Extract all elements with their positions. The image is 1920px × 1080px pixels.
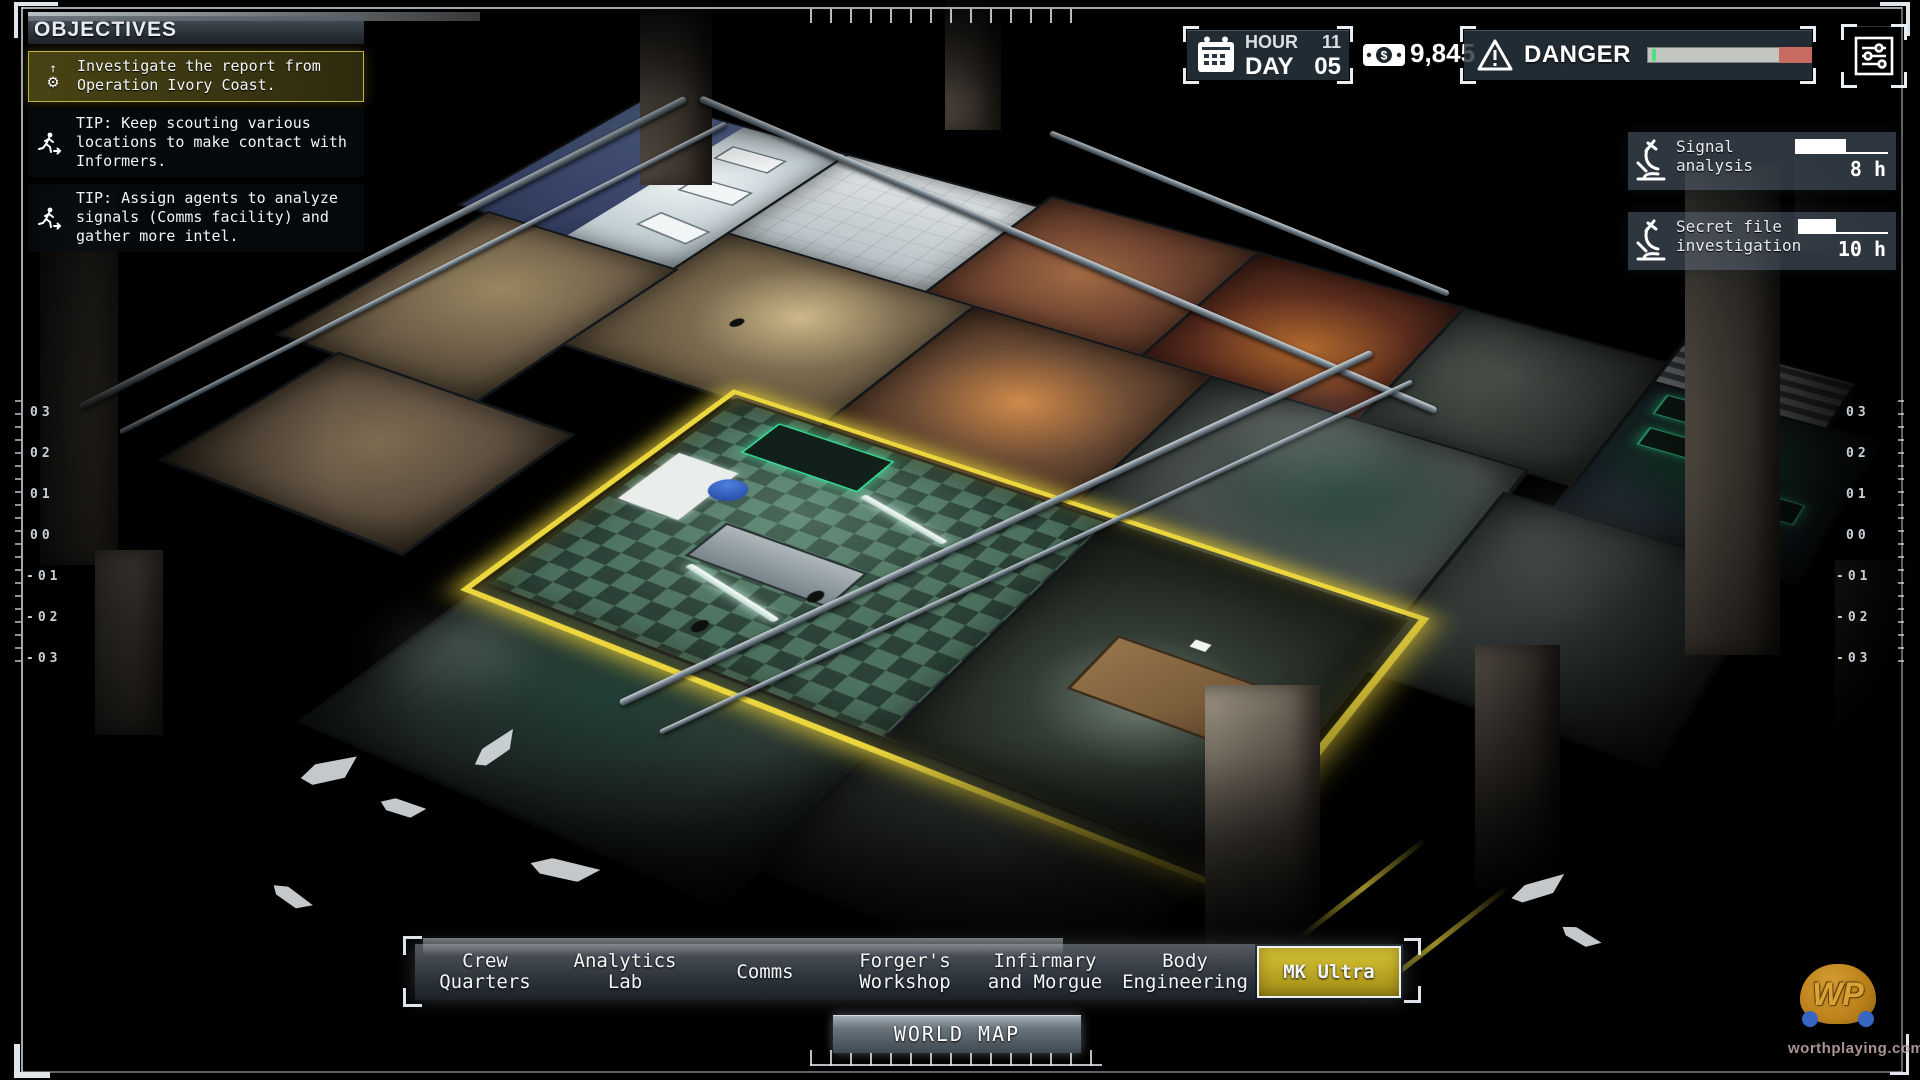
runner-icon — [36, 206, 68, 230]
hour-value: 11 — [1322, 32, 1341, 53]
tabbar-bracket-top-right — [1404, 938, 1421, 955]
danger-bar — [1647, 47, 1812, 63]
objective-text: Investigate the report from Operation Iv… — [77, 57, 321, 94]
ruler-label: 02 — [30, 446, 54, 461]
objective-item[interactable]: TIP: Keep scouting various locations to … — [28, 109, 364, 177]
objectives-panel: OBJECTIVES ↑⚙ Investigate the report fro… — [28, 16, 364, 252]
danger-level-marker — [1652, 49, 1656, 61]
ruler-label: 03 — [1846, 405, 1870, 420]
logo-dot — [1802, 1011, 1818, 1027]
facility-tab-bar: Crew Quarters Analytics Lab Comms Forger… — [415, 944, 1403, 1000]
objectives-title: OBJECTIVES — [34, 18, 177, 42]
task-signal-analysis[interactable]: Signal analysis 8 h — [1628, 132, 1896, 190]
objective-gear-icon: ↑⚙ — [37, 63, 69, 90]
ruler-label: -01 — [1836, 569, 1871, 584]
worthplaying-logo: WP — [1800, 964, 1876, 1024]
game-screen: { "objectives": { "title": "OBJECTIVES",… — [0, 0, 1920, 1080]
smoke — [1240, 400, 1390, 480]
objective-item[interactable]: ↑⚙ Investigate the report from Operation… — [28, 51, 364, 102]
danger-red-zone — [1779, 47, 1812, 63]
hour-label: HOUR — [1245, 32, 1298, 53]
svg-text:$: $ — [1381, 49, 1388, 63]
ruler-label: -03 — [1836, 651, 1871, 666]
smoke — [380, 620, 520, 690]
task-secret-file[interactable]: Secret file investigation 10 h — [1628, 212, 1896, 270]
tabbar-bracket-bottom-right — [1404, 986, 1421, 1003]
danger-label: DANGER — [1524, 41, 1631, 69]
task-progress-track — [1795, 152, 1888, 154]
day-value: 05 — [1314, 53, 1341, 81]
left-ruler-ticks — [15, 400, 21, 664]
bed — [636, 212, 711, 245]
smoke — [1500, 500, 1670, 590]
objective-text: TIP: Assign agents to analyze signals (C… — [76, 189, 338, 245]
microscope-icon — [1634, 137, 1668, 183]
ruler-label: -03 — [26, 651, 61, 666]
day-label: DAY — [1245, 53, 1293, 81]
objective-item[interactable]: TIP: Assign agents to analyze signals (C… — [28, 184, 364, 252]
right-ruler-ticks — [1898, 400, 1904, 664]
sliders-icon — [1852, 34, 1896, 78]
paint-shard — [269, 880, 315, 915]
task-time-left: 10 h — [1838, 237, 1886, 261]
ruler-label: -01 — [26, 569, 61, 584]
objectives-header: OBJECTIVES — [28, 16, 364, 44]
ruler-label: -02 — [26, 610, 61, 625]
wp-logo-text: WP — [1812, 976, 1864, 1013]
ruler-label: 01 — [1846, 487, 1870, 502]
ruler-label: 01 — [30, 487, 54, 502]
task-time-left: 8 h — [1850, 157, 1886, 181]
concrete-pillar — [640, 0, 712, 185]
microscope-icon — [1634, 217, 1668, 263]
ruler-label: 00 — [1846, 528, 1870, 543]
frame-corner-bottom-left — [14, 1044, 50, 1078]
concrete-pillar — [1475, 645, 1560, 890]
warning-triangle-icon — [1476, 38, 1514, 72]
agent-figure — [687, 618, 713, 634]
concrete-pillar — [95, 550, 163, 735]
task-name: Signal analysis — [1676, 137, 1795, 183]
logo-dot — [1858, 1011, 1874, 1027]
money-icon: $ — [1362, 41, 1406, 69]
calendar-icon — [1195, 35, 1237, 75]
frame-bottom-line — [22, 1071, 1902, 1073]
tab-mk-ultra-active[interactable]: MK Ultra — [1257, 946, 1401, 998]
frame-left-line — [21, 7, 23, 1073]
agent-figure — [726, 317, 747, 328]
worthplaying-url: worthplaying.com — [1788, 1040, 1914, 1057]
paint-shard — [379, 795, 427, 820]
task-name: Secret file investigation — [1676, 217, 1798, 263]
task-progress-fill — [1798, 219, 1836, 232]
ceiling-lamp — [860, 494, 948, 544]
paper — [1189, 640, 1211, 652]
runner-icon — [36, 131, 68, 155]
settings-button[interactable] — [1843, 26, 1905, 86]
top-ruler-ticks — [810, 9, 1082, 23]
time-panel: HOUR 11 DAY 05 — [1187, 30, 1349, 80]
world-map-label: WORLD MAP — [894, 1022, 1020, 1046]
tab-body-engineering[interactable]: Body Engineering — [1115, 944, 1255, 1000]
tabbar-highlight — [423, 938, 1063, 956]
danger-panel: DANGER — [1464, 30, 1812, 80]
ruler-label: -02 — [1836, 610, 1871, 625]
ruler-label: 00 — [30, 528, 54, 543]
task-progress-track — [1798, 232, 1888, 234]
bed — [713, 146, 787, 174]
task-progress-fill — [1795, 139, 1846, 152]
world-map-button[interactable]: WORLD MAP — [833, 1015, 1081, 1053]
ruler-label: 02 — [1846, 446, 1870, 461]
objective-text: TIP: Keep scouting various locations to … — [76, 114, 347, 170]
ruler-label: 03 — [30, 405, 54, 420]
